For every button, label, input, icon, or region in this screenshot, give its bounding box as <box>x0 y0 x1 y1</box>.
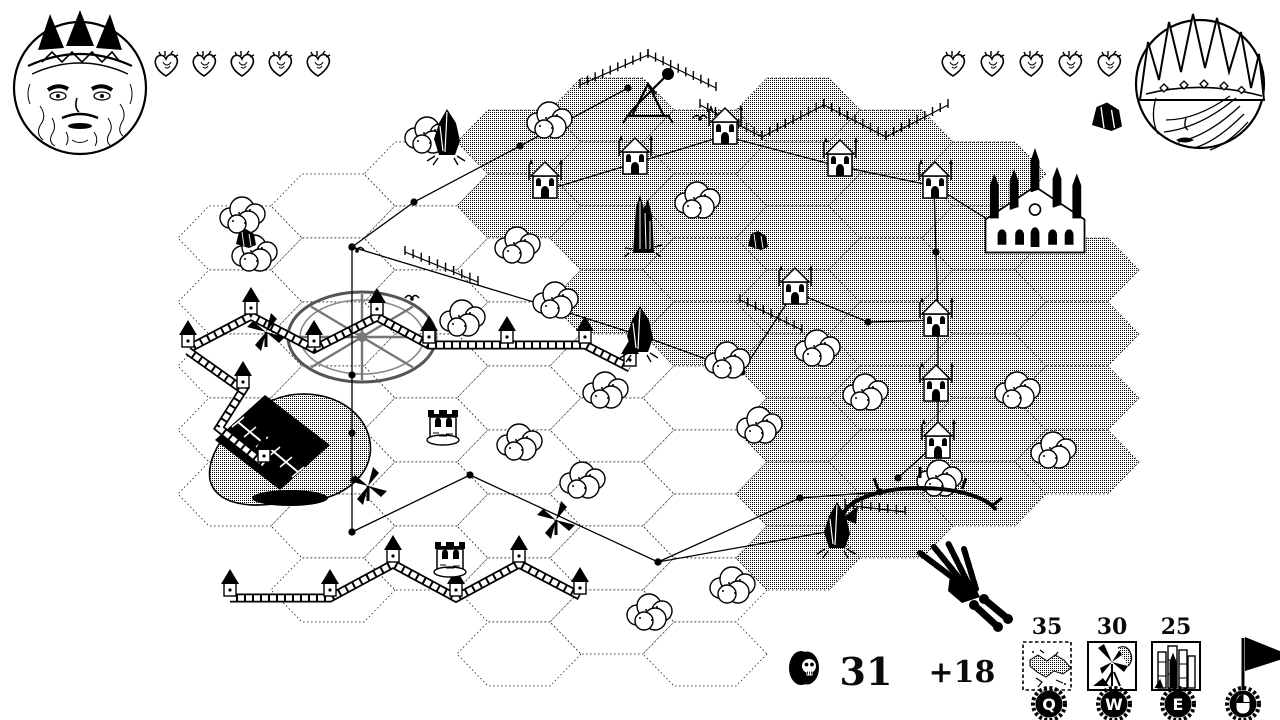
mouse-left-click-badge <box>1227 688 1259 720</box>
path-node <box>348 429 355 436</box>
tree-cluster <box>220 197 265 233</box>
watchtower <box>427 410 459 445</box>
gold-amount: 31 <box>840 649 893 694</box>
path-node <box>410 198 417 205</box>
heart-icon <box>193 51 216 76</box>
skull-coin-icon <box>789 651 819 685</box>
path-node <box>516 142 523 149</box>
heart-icon <box>942 51 965 76</box>
build-cost-w: 30 <box>1097 614 1128 640</box>
game-screen: 31 +18 35 Q 30 <box>0 0 1280 720</box>
build-cost-e: 25 <box>1161 614 1192 640</box>
hex-map[interactable] <box>178 49 1139 686</box>
svg-text:W: W <box>1105 695 1123 714</box>
heart-icon <box>269 51 292 76</box>
queen-portrait <box>1136 14 1264 150</box>
path-node <box>864 318 871 325</box>
economy-bar: 31 +18 <box>789 649 995 694</box>
watchtower <box>434 542 466 577</box>
flag-button[interactable] <box>1227 637 1280 720</box>
build-option-w[interactable]: 30 W <box>1088 614 1136 720</box>
build-cost-q: 35 <box>1032 614 1063 640</box>
path-node <box>466 471 473 478</box>
heart-icon <box>1020 51 1043 76</box>
wall-tower <box>179 320 197 347</box>
path-node <box>348 528 355 535</box>
path-node <box>796 494 803 501</box>
king-portrait <box>14 10 146 154</box>
heart-icon <box>1059 51 1082 76</box>
heart-icon <box>231 51 254 76</box>
svg-text:E: E <box>1173 695 1184 714</box>
income-amount: +18 <box>929 655 996 690</box>
heart-icon <box>981 51 1004 76</box>
svg-text:Q: Q <box>1042 695 1056 714</box>
heart-icon <box>307 51 330 76</box>
heart-icon <box>1098 51 1121 76</box>
build-option-q[interactable]: 35 Q <box>1023 614 1071 720</box>
rock-icon <box>1092 103 1122 132</box>
wall-tower <box>221 569 239 596</box>
skeletal-hand <box>920 543 1013 632</box>
path-node <box>894 474 901 481</box>
heart-icon <box>155 51 178 76</box>
hearts-right <box>942 51 1121 76</box>
path-node <box>932 248 939 255</box>
build-option-e[interactable]: 25 E <box>1152 614 1200 720</box>
path-node <box>348 371 355 378</box>
build-menu: 35 Q 30 <box>1023 614 1280 720</box>
pennant-flag-icon <box>1242 637 1280 690</box>
path-node <box>654 558 661 565</box>
hearts-left <box>155 51 330 76</box>
path-node <box>624 84 631 91</box>
